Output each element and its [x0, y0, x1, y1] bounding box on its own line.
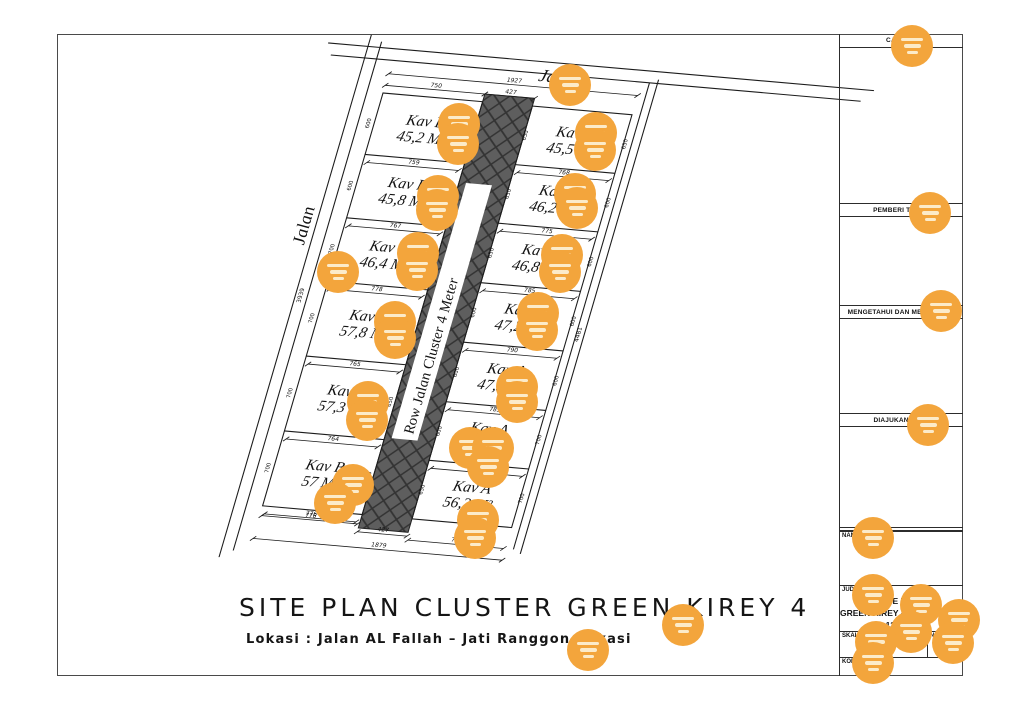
dim-label: 1927: [506, 77, 523, 85]
marker-text-line: [330, 270, 347, 274]
marker-text-line: [464, 530, 486, 534]
dim-label: 700: [535, 434, 544, 445]
marker-text-line: [426, 202, 448, 206]
marker-text-line: [477, 459, 499, 463]
dim-label: 427: [377, 526, 391, 534]
marker-text-line: [447, 136, 469, 140]
dim-label: 650: [621, 138, 630, 149]
marker-text-line: [406, 262, 428, 266]
annotation-marker[interactable]: [662, 604, 704, 646]
annotation-marker[interactable]: [907, 404, 949, 446]
dim-label: 600: [346, 180, 355, 191]
marker-text-line: [583, 655, 594, 659]
marker-text-line: [587, 148, 604, 152]
marker-text-line: [865, 593, 882, 597]
street-left-label: Jalan: [288, 206, 319, 246]
annotation-marker[interactable]: [374, 317, 416, 359]
annotation-marker[interactable]: [396, 249, 438, 291]
marker-text-line: [920, 423, 937, 427]
diajukan-box: [840, 427, 963, 527]
annotation-marker[interactable]: [852, 574, 894, 616]
marker-text-line: [509, 400, 526, 404]
annotation-marker[interactable]: [317, 251, 359, 293]
marker-text-line: [559, 77, 581, 81]
marker-text-line: [917, 417, 939, 421]
marker-text-line: [480, 465, 497, 469]
marker-text-line: [584, 142, 606, 146]
dim-label: 778: [370, 285, 384, 293]
marker-text-line: [569, 206, 586, 210]
annotation-marker[interactable]: [346, 399, 388, 441]
marker-text-line: [862, 530, 884, 534]
annotation-marker[interactable]: [932, 622, 974, 664]
marker-text-line: [448, 116, 470, 120]
dim-label: 600: [365, 118, 374, 129]
marker-text-line: [933, 309, 950, 313]
marker-text-line: [590, 155, 601, 159]
marker-text-line: [948, 612, 970, 616]
annotation-marker[interactable]: [852, 517, 894, 559]
mengetahui-box: [840, 319, 963, 413]
marker-text-line: [936, 316, 947, 320]
marker-text-line: [387, 336, 404, 340]
marker-text-line: [555, 277, 566, 281]
marker-text-line: [506, 394, 528, 398]
marker-text-line: [572, 213, 583, 217]
annotation-marker[interactable]: [454, 517, 496, 559]
dim-label: 759: [407, 159, 421, 167]
marker-text-line: [862, 587, 884, 591]
marker-text-line: [865, 661, 882, 665]
marker-text-line: [901, 38, 923, 42]
marker-text-line: [342, 477, 364, 481]
catatan-box: [840, 48, 963, 203]
marker-text-line: [672, 617, 694, 621]
marker-text-line: [906, 637, 917, 641]
marker-text-line: [356, 412, 378, 416]
marker-text-line: [945, 641, 962, 645]
dim-label: 600: [569, 316, 578, 327]
marker-text-line: [453, 149, 464, 153]
annotation-marker[interactable]: [467, 446, 509, 488]
drawing-sheet: Kav B45,2 M²759Kav B45,8 M²767Kav B46,4 …: [0, 0, 1016, 714]
marker-text-line: [923, 430, 934, 434]
dim-label: 1879: [370, 541, 387, 549]
marker-text-line: [562, 83, 579, 87]
marker-text-line: [913, 603, 930, 607]
marker-text-line: [512, 407, 523, 411]
marker-text-line: [948, 648, 959, 652]
marker-text-line: [357, 394, 379, 398]
marker-text-line: [925, 218, 936, 222]
annotation-marker[interactable]: [314, 482, 356, 524]
marker-text-line: [678, 630, 689, 634]
marker-text-line: [552, 270, 569, 274]
marker-text-line: [865, 536, 882, 540]
marker-text-line: [482, 440, 504, 444]
dim-label: 700: [308, 312, 317, 323]
marker-text-line: [330, 508, 341, 512]
dim-label: 700: [264, 462, 273, 473]
marker-text-line: [412, 275, 423, 279]
annotation-marker[interactable]: [556, 187, 598, 229]
marker-text-line: [467, 512, 489, 516]
marker-text-line: [930, 303, 952, 307]
marker-text-line: [675, 623, 692, 627]
marker-text-line: [868, 600, 879, 604]
marker-text-line: [529, 328, 546, 332]
marker-text-line: [450, 142, 467, 146]
annotation-marker[interactable]: [539, 251, 581, 293]
annotation-marker[interactable]: [574, 129, 616, 171]
dim-label: 600: [604, 197, 613, 208]
dim-label: 776: [304, 512, 318, 520]
marker-text-line: [429, 208, 446, 212]
marker-text-line: [903, 630, 920, 634]
annotation-marker[interactable]: [549, 64, 591, 106]
marker-text-line: [384, 330, 406, 334]
marker-text-line: [577, 642, 599, 646]
marker-text-line: [865, 634, 887, 638]
marker-text-line: [942, 635, 964, 639]
marker-text-line: [324, 495, 346, 499]
annotation-marker[interactable]: [567, 629, 609, 671]
marker-text-line: [359, 418, 376, 422]
annotation-marker[interactable]: [920, 290, 962, 332]
dim-label: 790: [506, 347, 520, 355]
marker-text-line: [327, 501, 344, 505]
marker-text-line: [327, 264, 349, 268]
marker-text-line: [922, 211, 939, 215]
dim-label: 764: [326, 435, 340, 443]
marker-text-line: [919, 205, 941, 209]
dim-label: 767: [389, 222, 403, 230]
dim-label: 600: [552, 375, 561, 386]
annotation-marker[interactable]: [516, 309, 558, 351]
dim-label: 427: [504, 88, 518, 96]
marker-text-line: [409, 268, 426, 272]
marker-text-line: [868, 543, 879, 547]
dim-label: 775: [540, 228, 554, 236]
marker-text-line: [527, 305, 549, 309]
marker-text-line: [483, 472, 494, 476]
annotation-marker[interactable]: [496, 381, 538, 423]
annotation-marker[interactable]: [852, 642, 894, 684]
annotation-marker[interactable]: [416, 189, 458, 231]
marker-text-line: [333, 277, 344, 281]
annotation-marker[interactable]: [437, 123, 479, 165]
marker-text-line: [566, 200, 588, 204]
marker-text-line: [585, 125, 607, 129]
dim-label: 765: [348, 360, 362, 368]
dim-label: 600: [587, 256, 596, 267]
dim-label: 700: [518, 493, 527, 504]
dim-label: 700: [286, 387, 295, 398]
marker-text-line: [532, 335, 543, 339]
marker-text-line: [362, 425, 373, 429]
annotation-marker[interactable]: [909, 192, 951, 234]
marker-text-line: [580, 648, 597, 652]
plan-title: SITE PLAN CLUSTER GREEN KIREY 4: [239, 593, 810, 622]
dim-label: 750: [429, 82, 443, 90]
marker-text-line: [900, 624, 922, 628]
marker-text-line: [551, 247, 573, 251]
marker-text-line: [868, 668, 879, 672]
marker-text-line: [432, 215, 443, 219]
marker-text-line: [904, 44, 921, 48]
marker-text-line: [407, 245, 429, 249]
marker-text-line: [390, 343, 401, 347]
marker-text-line: [565, 90, 576, 94]
marker-text-line: [470, 543, 481, 547]
marker-text-line: [526, 322, 548, 326]
annotation-marker[interactable]: [891, 25, 933, 67]
marker-text-line: [549, 264, 571, 268]
marker-text-line: [467, 536, 484, 540]
marker-text-line: [907, 51, 918, 55]
marker-text-line: [910, 597, 932, 601]
marker-text-line: [862, 655, 884, 659]
